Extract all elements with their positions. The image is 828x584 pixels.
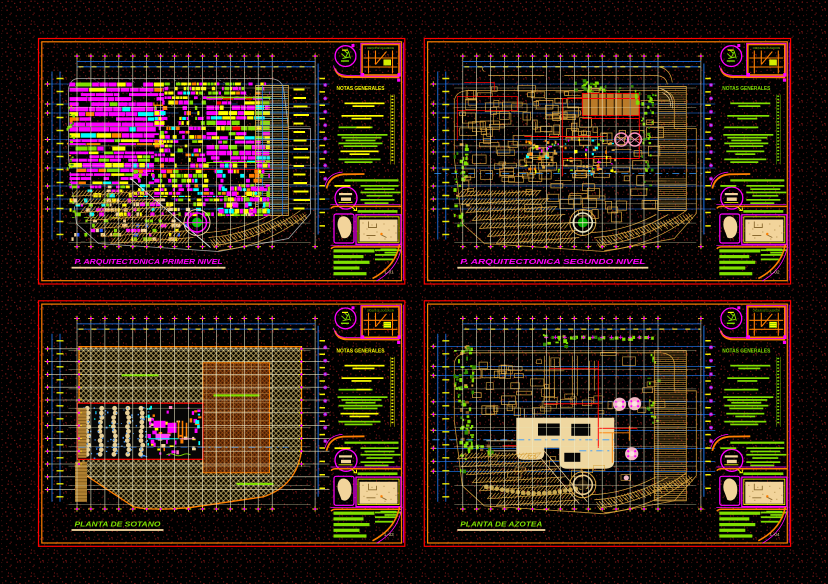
svg-text:CROQUIS DE LOCALIZACION: CROQUIS DE LOCALIZACION <box>753 308 780 312</box>
svg-text:P. ARQUITECTONICA SEGUNDO NIVE: P. ARQUITECTONICA SEGUNDO NIVEL <box>460 257 645 266</box>
svg-text:P. ARQUITECTONICA PRIMER NIVEL: P. ARQUITECTONICA PRIMER NIVEL <box>75 257 223 266</box>
svg-text:NOTAS GENERALES: NOTAS GENERALES <box>722 348 770 354</box>
svg-text:L-02: L-02 <box>770 270 780 275</box>
svg-text:NOTAS GENERALES: NOTAS GENERALES <box>337 348 385 354</box>
svg-text:PLANTA DE AZOTEA: PLANTA DE AZOTEA <box>460 519 542 528</box>
svg-text:L-03: L-03 <box>385 532 395 537</box>
svg-text:CROQUIS DE LOCALIZACION: CROQUIS DE LOCALIZACION <box>753 46 780 50</box>
svg-text:NOTAS GENERALES: NOTAS GENERALES <box>722 86 770 92</box>
svg-text:CROQUIS DE LOCALIZACION: CROQUIS DE LOCALIZACION <box>367 46 394 50</box>
svg-text:L-01: L-01 <box>385 270 395 275</box>
svg-text:PLANTA DE SOTANO: PLANTA DE SOTANO <box>75 519 161 528</box>
svg-text:CROQUIS DE LOCALIZACION: CROQUIS DE LOCALIZACION <box>367 308 394 312</box>
svg-text:NOTAS GENERALES: NOTAS GENERALES <box>337 86 385 92</box>
svg-text:L-04: L-04 <box>770 532 780 537</box>
